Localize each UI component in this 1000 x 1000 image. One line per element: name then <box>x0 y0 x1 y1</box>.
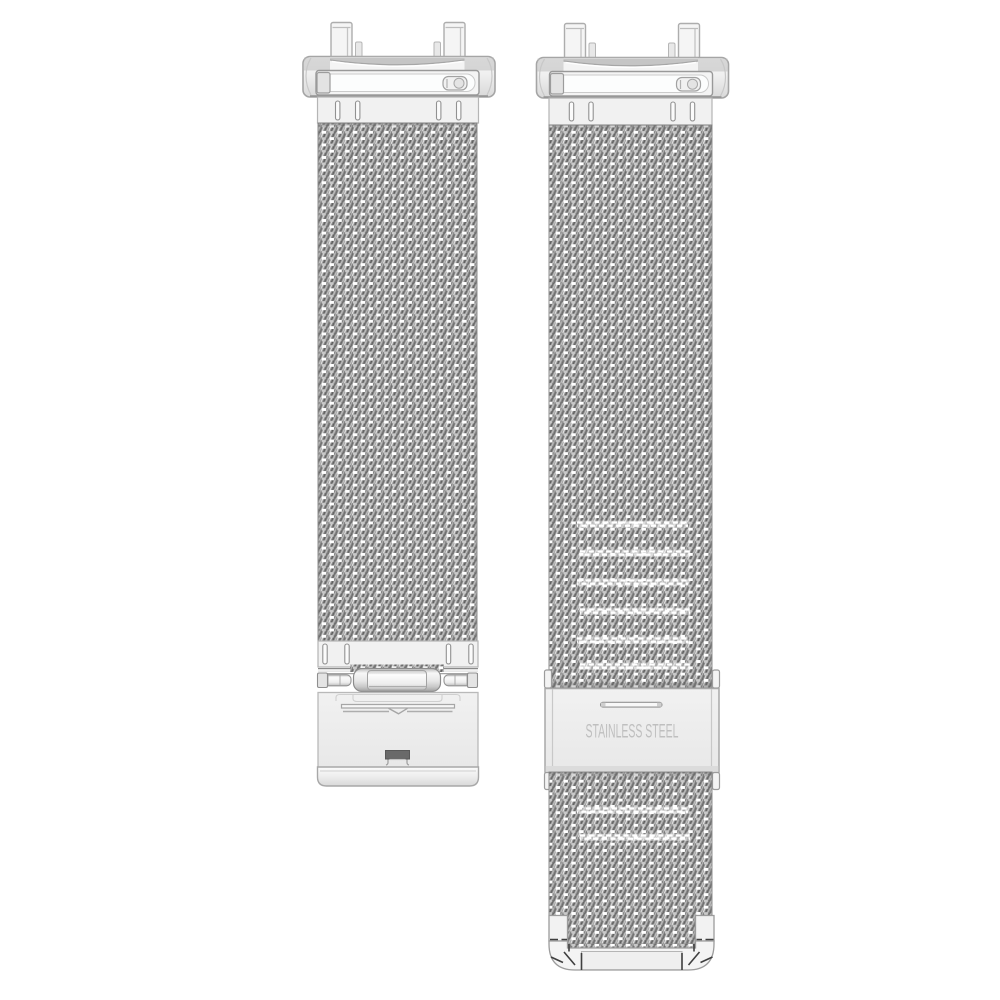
svg-text:STAINLESS STEEL: STAINLESS STEEL <box>586 721 679 743</box>
